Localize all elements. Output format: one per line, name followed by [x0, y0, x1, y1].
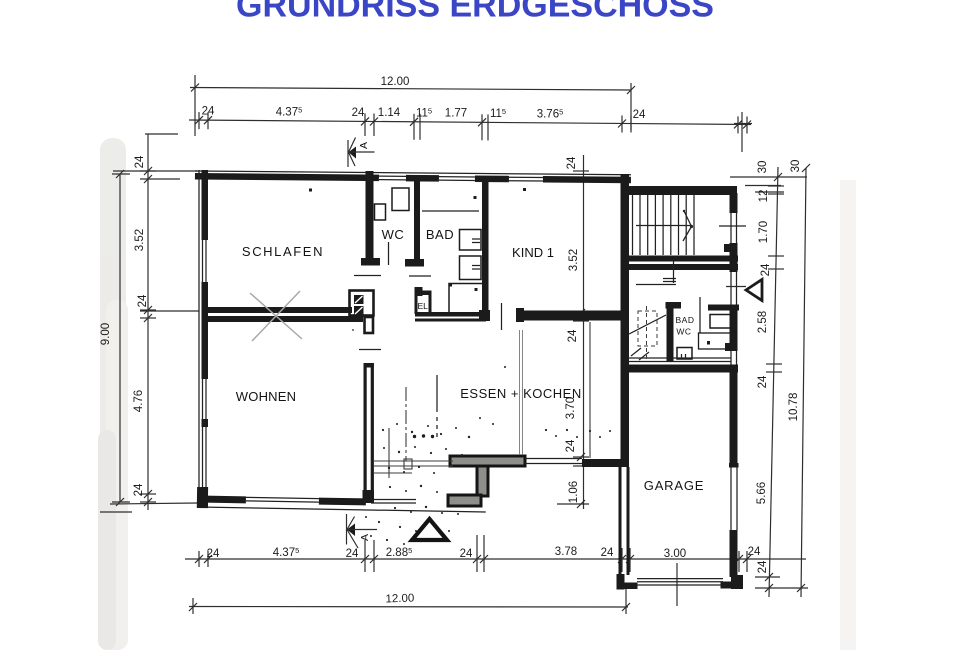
svg-text:WC: WC [382, 227, 405, 242]
svg-text:24: 24 [460, 548, 473, 560]
svg-text:KIND 1: KIND 1 [512, 245, 554, 260]
svg-text:24: 24 [202, 106, 215, 118]
svg-text:EL: EL [418, 301, 429, 311]
svg-text:24: 24 [137, 294, 149, 307]
svg-text:9.00: 9.00 [100, 323, 112, 345]
svg-text:24: 24 [207, 548, 220, 560]
svg-text:12.00: 12.00 [385, 593, 414, 606]
svg-text:24: 24 [134, 155, 146, 168]
svg-text:12: 12 [758, 190, 770, 203]
svg-text:24: 24 [565, 439, 577, 452]
svg-text:GRUNDRISS ERDGESCHOSS: GRUNDRISS ERDGESCHOSS [236, 0, 714, 25]
svg-text:1.70: 1.70 [758, 221, 770, 243]
svg-text:BAD: BAD [676, 315, 695, 325]
svg-text:30: 30 [790, 160, 802, 173]
svg-text:SCHLAFEN: SCHLAFEN [242, 244, 324, 259]
svg-text:30: 30 [757, 161, 769, 174]
svg-text:2.58: 2.58 [757, 311, 769, 333]
svg-text:1.06: 1.06 [568, 481, 580, 503]
svg-text:24: 24 [748, 546, 761, 558]
svg-text:24: 24 [760, 263, 772, 276]
svg-text:10.78: 10.78 [788, 393, 800, 422]
svg-text:BAD: BAD [426, 227, 454, 242]
svg-text:24: 24 [566, 156, 578, 169]
svg-text:3.52: 3.52 [134, 229, 146, 251]
svg-text:ESSEN + KOCHEN: ESSEN + KOCHEN [460, 386, 582, 401]
svg-text:3.52: 3.52 [568, 249, 580, 271]
svg-text:12.00: 12.00 [381, 76, 410, 88]
svg-text:24: 24 [633, 109, 646, 121]
svg-text:24: 24 [352, 107, 365, 119]
svg-text:24: 24 [133, 483, 145, 496]
svg-text:24: 24 [601, 547, 614, 559]
svg-text:WOHNEN: WOHNEN [236, 389, 296, 404]
svg-text:24: 24 [567, 329, 579, 342]
svg-text:3.78: 3.78 [555, 546, 577, 558]
svg-text:1.14: 1.14 [378, 107, 401, 119]
svg-text:WC: WC [676, 327, 691, 337]
svg-text:5.66: 5.66 [756, 482, 768, 504]
svg-text:A: A [358, 142, 370, 149]
svg-text:GARAGE: GARAGE [644, 478, 704, 493]
svg-text:24: 24 [757, 375, 769, 388]
svg-text:24: 24 [346, 548, 359, 560]
svg-text:24: 24 [757, 560, 769, 573]
svg-text:3.00: 3.00 [664, 548, 686, 560]
svg-text:A: A [359, 534, 371, 541]
svg-text:1.77: 1.77 [445, 108, 467, 120]
svg-text:4.76: 4.76 [133, 390, 145, 412]
